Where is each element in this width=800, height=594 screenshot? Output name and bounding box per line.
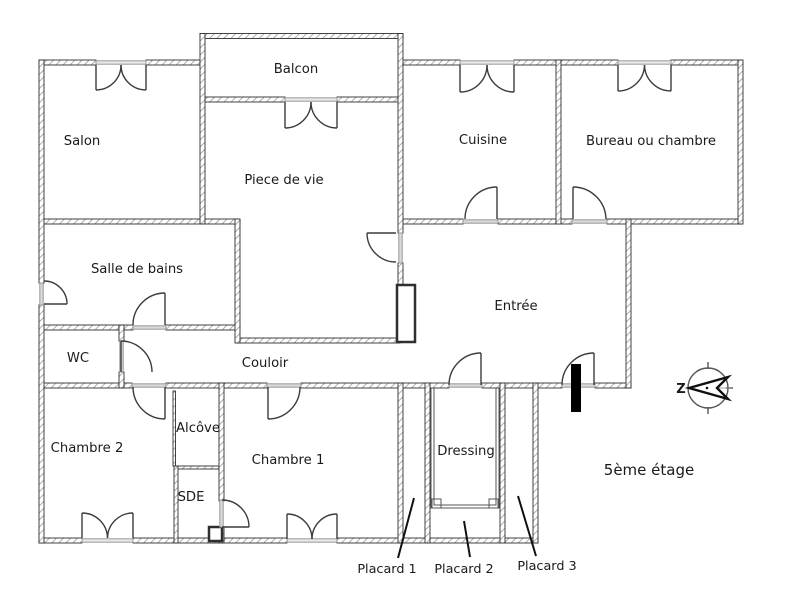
salle-de-bains-door [133,293,165,325]
room-label-wc: WC [67,351,89,366]
compass-north-letter: Z [676,382,685,397]
wall-balcony-top [200,34,403,39]
entry-door-marker [571,364,581,412]
room-label-piece-de-vie: Piece de vie [244,173,323,188]
chambre1-window [287,514,337,539]
label-placard1: Placard 1 [357,562,416,577]
chambre2-window [82,513,133,538]
room-label-salon: Salon [64,134,101,149]
room-label-balcon: Balcon [274,62,318,77]
opening-sills [40,61,671,542]
room-label-sde: SDE [178,490,205,505]
chambre2-door [133,387,165,419]
floor-level-label: 5ème étage [604,461,694,479]
entree-door-1 [449,353,481,385]
room-label-cuisine: Cuisine [459,133,507,148]
doors-layer [44,65,671,539]
sde-corner-box [209,527,222,541]
cuisine-door [465,187,497,219]
bureau-window [618,65,671,91]
compass-icon: Z [676,362,733,414]
room-label-chambre2: Chambre 2 [51,441,124,456]
floor-plan-page: Z Salon Balcon Piece de vie Cuisine Bure… [0,0,800,594]
wc-door [121,341,152,372]
piece-de-vie-door [367,233,396,262]
room-label-entree: Entrée [494,298,537,314]
label-placard2: Placard 2 [434,562,493,577]
label-placard3: Placard 3 [517,559,576,574]
cuisine-window [460,65,514,92]
balcony-door [285,102,337,128]
salon-window [96,65,146,90]
bureau-door [573,187,606,219]
room-label-alcove: Alcôve [176,420,220,436]
room-label-bureau: Bureau ou chambre [586,134,716,149]
sde-door [222,500,249,527]
room-label-salle-de-bains: Salle de bains [91,262,183,277]
room-label-dressing: Dressing [437,444,495,459]
floor-plan: Z Salon Balcon Piece de vie Cuisine Bure… [0,0,800,594]
labels-layer: Salon Balcon Piece de vie Cuisine Bureau… [51,62,716,577]
salle-de-bains-left-door [44,281,67,304]
room-label-couloir: Couloir [242,356,289,371]
room-label-chambre1: Chambre 1 [252,453,325,468]
duct-box [397,285,415,342]
chambre1-door [268,387,300,419]
